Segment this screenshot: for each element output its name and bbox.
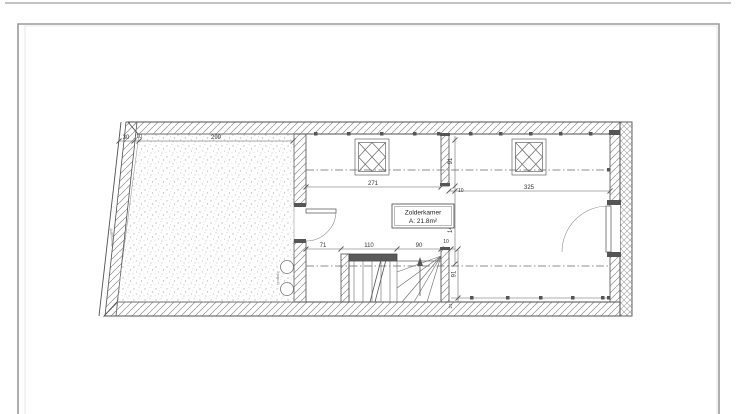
dim-91-stub: 91 <box>448 157 454 164</box>
room-name: Zolderkamer <box>405 210 442 217</box>
stub-cap-top <box>440 133 450 136</box>
floor-plan-svg: 30 10 299 271 325 91 10 146 71 110 90 10… <box>0 0 736 414</box>
door-right <box>562 200 621 257</box>
dim-30: 30 <box>123 135 130 141</box>
dim-71: 71 <box>320 243 327 249</box>
room-label-box: Zolderkamer A: 21.8m² <box>392 204 454 228</box>
stairwell <box>341 247 450 302</box>
door-left <box>294 203 336 243</box>
vent-duct-2-icon <box>281 283 294 296</box>
stair-break-line <box>370 256 387 302</box>
middle-wall-upper <box>294 134 306 205</box>
dim-299: 299 <box>211 135 222 141</box>
dim-21: 21 <box>448 303 453 309</box>
right-wall-outer <box>620 122 632 316</box>
vent-duct-1-icon <box>281 261 294 274</box>
dim-90: 90 <box>416 243 423 249</box>
dim-10-stub: 10 <box>458 188 464 194</box>
bottom-wall <box>104 302 620 316</box>
stair-wall-right <box>441 248 449 302</box>
dim-10-stair: 10 <box>443 239 449 245</box>
dim-325: 325 <box>524 185 535 191</box>
door-right-swing-arc <box>562 206 608 252</box>
stub-cap-bottom <box>440 183 450 186</box>
roof-window-1-icon <box>355 139 389 175</box>
door-right-leaf <box>606 206 611 252</box>
top-wall <box>128 122 620 134</box>
vent-label: ventilatie <box>276 271 280 285</box>
roof-window-2-icon <box>512 139 546 175</box>
door-left-swing-arc <box>306 211 336 241</box>
door-left-leaf <box>306 209 336 213</box>
dim-110: 110 <box>364 243 374 249</box>
drawing-sheet: 30 10 299 271 325 91 10 146 71 110 90 10… <box>0 0 736 414</box>
knee-wall-line <box>451 296 610 300</box>
dim-271: 271 <box>368 181 379 187</box>
stair-wall-top <box>349 254 397 261</box>
stair-wall-left <box>341 254 349 302</box>
dim-91-knee: 91 <box>452 270 458 277</box>
room-area: A: 21.8m² <box>409 218 438 225</box>
left-room-floor <box>117 134 294 302</box>
middle-wall-lower <box>294 241 306 302</box>
dim-10-top: 10 <box>136 134 142 140</box>
